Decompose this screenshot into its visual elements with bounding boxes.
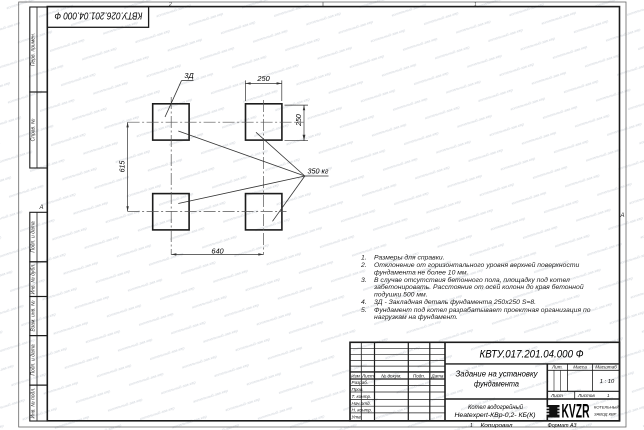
svg-text:подушки 500 мм.: подушки 500 мм. (374, 291, 428, 299)
svg-text:3Д: 3Д (184, 71, 193, 80)
svg-text:Размеры для справки.: Размеры для справки. (374, 254, 445, 262)
svg-text:Инв. № дубл.: Инв. № дубл. (31, 264, 37, 295)
svg-text:Перв. примен.: Перв. примен. (31, 33, 37, 66)
svg-text:КВТУ.017.201.04.000 Ф: КВТУ.017.201.04.000 Ф (480, 349, 584, 361)
svg-text:А: А (39, 205, 44, 211)
svg-text:Пров.: Пров. (352, 387, 364, 392)
svg-text:1: 1 (607, 393, 610, 398)
svg-text:Н. контр.: Н. контр. (352, 408, 373, 413)
svg-text:4.: 4. (361, 299, 367, 306)
svg-text:забетонировать. Расстояние от: забетонировать. Расстояние от осей колон… (373, 283, 584, 291)
svg-text:615: 615 (120, 161, 127, 173)
svg-text:№ докум.: № докум. (381, 373, 401, 378)
svg-text:КВТУ.026.201.04.000 Ф: КВТУ.026.201.04.000 Ф (54, 9, 142, 20)
svg-text:Масса: Масса (573, 365, 587, 370)
svg-text:Взам. инв. №: Взам. инв. № (31, 300, 37, 332)
svg-text:Лит.: Лит. (551, 365, 563, 370)
svg-text:640: 640 (211, 247, 224, 256)
svg-text:Дата: Дата (430, 373, 444, 378)
svg-text:Копировал: Копировал (481, 423, 514, 429)
svg-text:Heatexpert-КВр-0,2- КБ(К): Heatexpert-КВр-0,2- КБ(К) (455, 412, 536, 419)
svg-text:Лист: Лист (550, 393, 563, 398)
svg-text:Справ. №: Справ. № (31, 118, 37, 141)
svg-text:Подп. и дата: Подп. и дата (31, 344, 37, 376)
svg-text:Нач.отд.: Нач.отд. (352, 401, 371, 406)
svg-text:1.: 1. (361, 255, 367, 262)
svg-text:Утв.: Утв. (352, 414, 362, 419)
svg-text:Задание на установку: Задание на установку (456, 369, 539, 379)
svg-text:KVZR: KVZR (562, 401, 590, 422)
svg-text:5.: 5. (361, 307, 367, 314)
svg-text:Листов: Листов (577, 393, 595, 398)
svg-text:Котел водогрейный: Котел водогрейный (468, 403, 523, 411)
svg-text:Подп.: Подп. (413, 373, 425, 378)
svg-text:250: 250 (256, 74, 270, 83)
svg-text:Изм: Изм (351, 373, 360, 378)
svg-text:нагрузкам на фундамент.: нагрузкам на фундамент. (374, 313, 458, 321)
svg-text:Фундамент под котел разрабатыв: Фундамент под котел разрабатывает проект… (374, 306, 591, 314)
svg-text:250: 250 (296, 114, 303, 127)
svg-text:1: 1 (470, 423, 473, 429)
svg-text:Масштаб: Масштаб (595, 365, 617, 370)
svg-text:Формат А3: Формат А3 (548, 423, 578, 429)
svg-text:Разраб.: Разраб. (352, 380, 369, 385)
svg-text:3.: 3. (361, 277, 367, 284)
svg-text:фундамента не более 10 мм.: фундамента не более 10 мм. (374, 268, 469, 276)
svg-text:Отклонение от горизонтального: Отклонение от горизонтального уровня вер… (374, 261, 580, 269)
svg-text:В случае отсутствия бетонного: В случае отсутствия бетонного пола, площ… (374, 276, 570, 284)
svg-text:Инв. № подл.: Инв. № подл. (31, 387, 37, 418)
svg-text:Лист: Лист (361, 373, 374, 378)
svg-text:КОТЕЛЬНЫЙ: КОТЕЛЬНЫЙ (594, 405, 619, 410)
svg-text:Т. контр.: Т. контр. (352, 394, 372, 399)
svg-text:Подп. и дата: Подп. и дата (31, 221, 37, 253)
svg-text:3Д - Закладная деталь фундамен: 3Д - Закладная деталь фундамента 250х250… (374, 298, 536, 306)
svg-text:1 : 10: 1 : 10 (600, 379, 615, 385)
svg-text:ЗАВОД КВР: ЗАВОД КВР (594, 412, 617, 417)
svg-text:фундамента: фундамента (474, 378, 519, 388)
svg-text:2.: 2. (360, 262, 367, 269)
svg-text:350 кг: 350 кг (308, 167, 329, 176)
